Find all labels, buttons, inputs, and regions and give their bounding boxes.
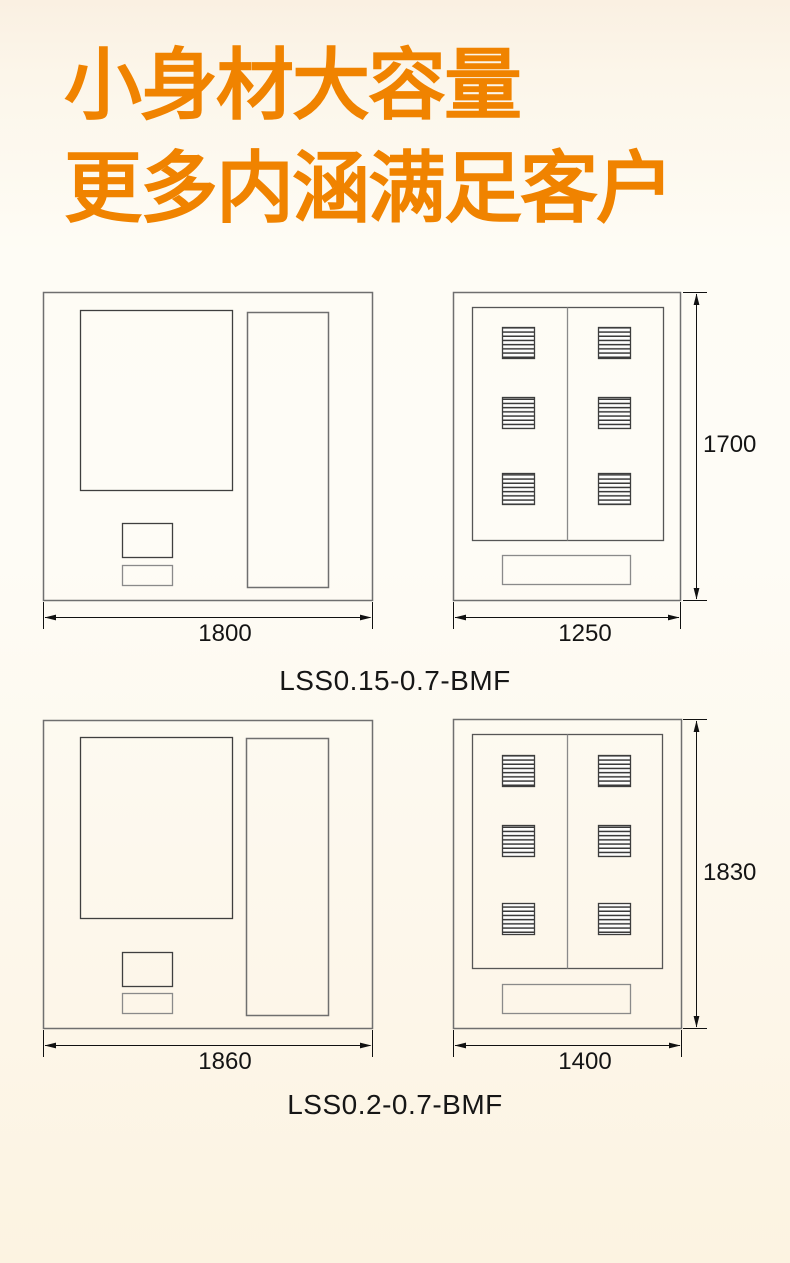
arrowhead-left [455,1043,467,1049]
height-dimension-label: 1830 [703,859,756,886]
arrowhead-top [694,721,700,733]
vent-grille [599,398,631,429]
vent-grille [503,474,535,505]
front-panel-tall [248,313,329,588]
arrowhead-top [694,294,700,306]
figure2-side-view: 1830 1400 [445,716,790,1076]
vent-grille [599,826,631,857]
height-dimension: 1700 [683,293,756,601]
vent-grille [503,756,535,787]
front-panel-large [81,738,233,919]
arrowhead-bottom [694,588,700,600]
base-slot [503,985,631,1014]
arrowhead-right [668,615,680,621]
headline-line-1: 小身材大容量 [64,46,520,124]
vent-grille [599,474,631,505]
base-slot [503,556,631,585]
vent-grilles [503,756,631,935]
vent-grilles [503,328,631,505]
width-dimension-label: 1250 [558,620,611,647]
width-dimension: 1800 [44,602,373,647]
cabinet-outline [44,721,373,1029]
arrowhead-right [360,615,372,621]
height-dimension-label: 1700 [703,431,756,458]
headline-line-2: 更多内涵满足客户 [64,149,672,227]
width-dimension-label: 1400 [558,1048,611,1075]
figure1-front-view: 1800 [25,288,385,648]
vent-grille [503,328,535,359]
arrowhead-left [455,615,467,621]
front-panel-small-upper [123,524,173,558]
width-dimension: 1860 [44,1030,373,1075]
width-dimension: 1250 [454,602,681,647]
arrowhead-left [45,1043,57,1049]
vent-grille [503,904,535,935]
vent-grille [503,826,535,857]
model-caption-2: LSS0.2-0.7-BMF [0,1089,790,1121]
width-dimension-label: 1800 [198,620,251,647]
front-panel-small-lower [123,566,173,586]
figure1-side-view: 1700 1250 [445,288,790,648]
vent-grille [599,904,631,935]
height-dimension: 1830 [683,720,756,1029]
vent-grille [599,328,631,359]
vent-grille [503,398,535,429]
front-panel-tall [247,739,329,1016]
width-dimension: 1400 [454,1030,682,1075]
model-caption-1: LSS0.15-0.7-BMF [0,665,790,697]
front-panel-large [81,311,233,491]
width-dimension-label: 1860 [198,1048,251,1075]
vent-grille [599,756,631,787]
arrowhead-bottom [694,1016,700,1028]
arrowhead-left [45,615,57,621]
front-panel-small-lower [123,994,173,1014]
product-spec-page: 小身材大容量 更多内涵满足客户 1800 [0,0,790,1263]
front-panel-small-upper [123,953,173,987]
figure2-front-view: 1860 [25,716,385,1076]
arrowhead-right [669,1043,681,1049]
arrowhead-right [360,1043,372,1049]
cabinet-outline [44,293,373,601]
